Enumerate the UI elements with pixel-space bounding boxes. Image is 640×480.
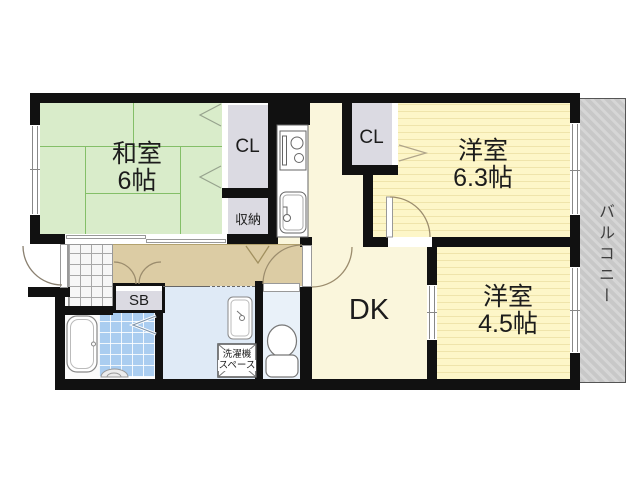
shoe-box-label: SB bbox=[116, 292, 162, 309]
wall bbox=[65, 306, 113, 315]
entrance-genkan bbox=[68, 244, 113, 310]
wall bbox=[55, 287, 65, 390]
wall bbox=[222, 188, 268, 198]
bedroom2-size: 4.5帖 bbox=[448, 311, 568, 338]
hallway bbox=[112, 244, 302, 286]
closet2-opening bbox=[392, 103, 398, 165]
laundry-space-label: 洗濯機 スペース bbox=[213, 349, 261, 371]
bathroom-tile-floor bbox=[99, 313, 155, 377]
laundry-line2: スペース bbox=[218, 360, 257, 371]
laundry-line1: 洗濯機 bbox=[222, 349, 253, 360]
washitsu-label: 和室 6帖 bbox=[77, 141, 197, 195]
door-opening bbox=[388, 237, 432, 247]
wall bbox=[300, 287, 312, 379]
window bbox=[427, 285, 437, 340]
bedroom2-name: 洋室 bbox=[448, 284, 568, 311]
washitsu-size: 6帖 bbox=[77, 168, 197, 195]
bedroom1-size: 6.3帖 bbox=[423, 165, 543, 192]
dk-label: DK bbox=[338, 294, 400, 327]
window bbox=[30, 125, 40, 215]
door-leaf bbox=[302, 245, 312, 287]
storage-label: 収納 bbox=[226, 209, 270, 228]
balcony-label: バルコニー bbox=[592, 200, 616, 310]
bedroom1-name: 洋室 bbox=[423, 138, 543, 165]
closet1-label: CL bbox=[227, 136, 268, 158]
window bbox=[570, 267, 580, 353]
entrance-door bbox=[60, 244, 68, 288]
bedroom1-label: 洋室 6.3帖 bbox=[423, 138, 543, 192]
door-swing-arc bbox=[23, 246, 62, 285]
room-toilet bbox=[263, 286, 302, 379]
bedroom2-label: 洋室 4.5帖 bbox=[448, 284, 568, 338]
wall bbox=[55, 379, 580, 390]
washitsu-name: 和室 bbox=[77, 141, 197, 168]
sliding-door bbox=[65, 234, 227, 244]
wall bbox=[363, 172, 373, 247]
floor-plan: 和室 6帖 洋室 6.3帖 洋室 4.5帖 DK CL CL 収納 SB 洗濯機… bbox=[0, 0, 640, 480]
accordion-door bbox=[207, 286, 255, 287]
closet2-label: CL bbox=[351, 127, 392, 149]
door-opening bbox=[263, 283, 300, 292]
window bbox=[570, 123, 580, 215]
wall-line bbox=[163, 286, 207, 287]
